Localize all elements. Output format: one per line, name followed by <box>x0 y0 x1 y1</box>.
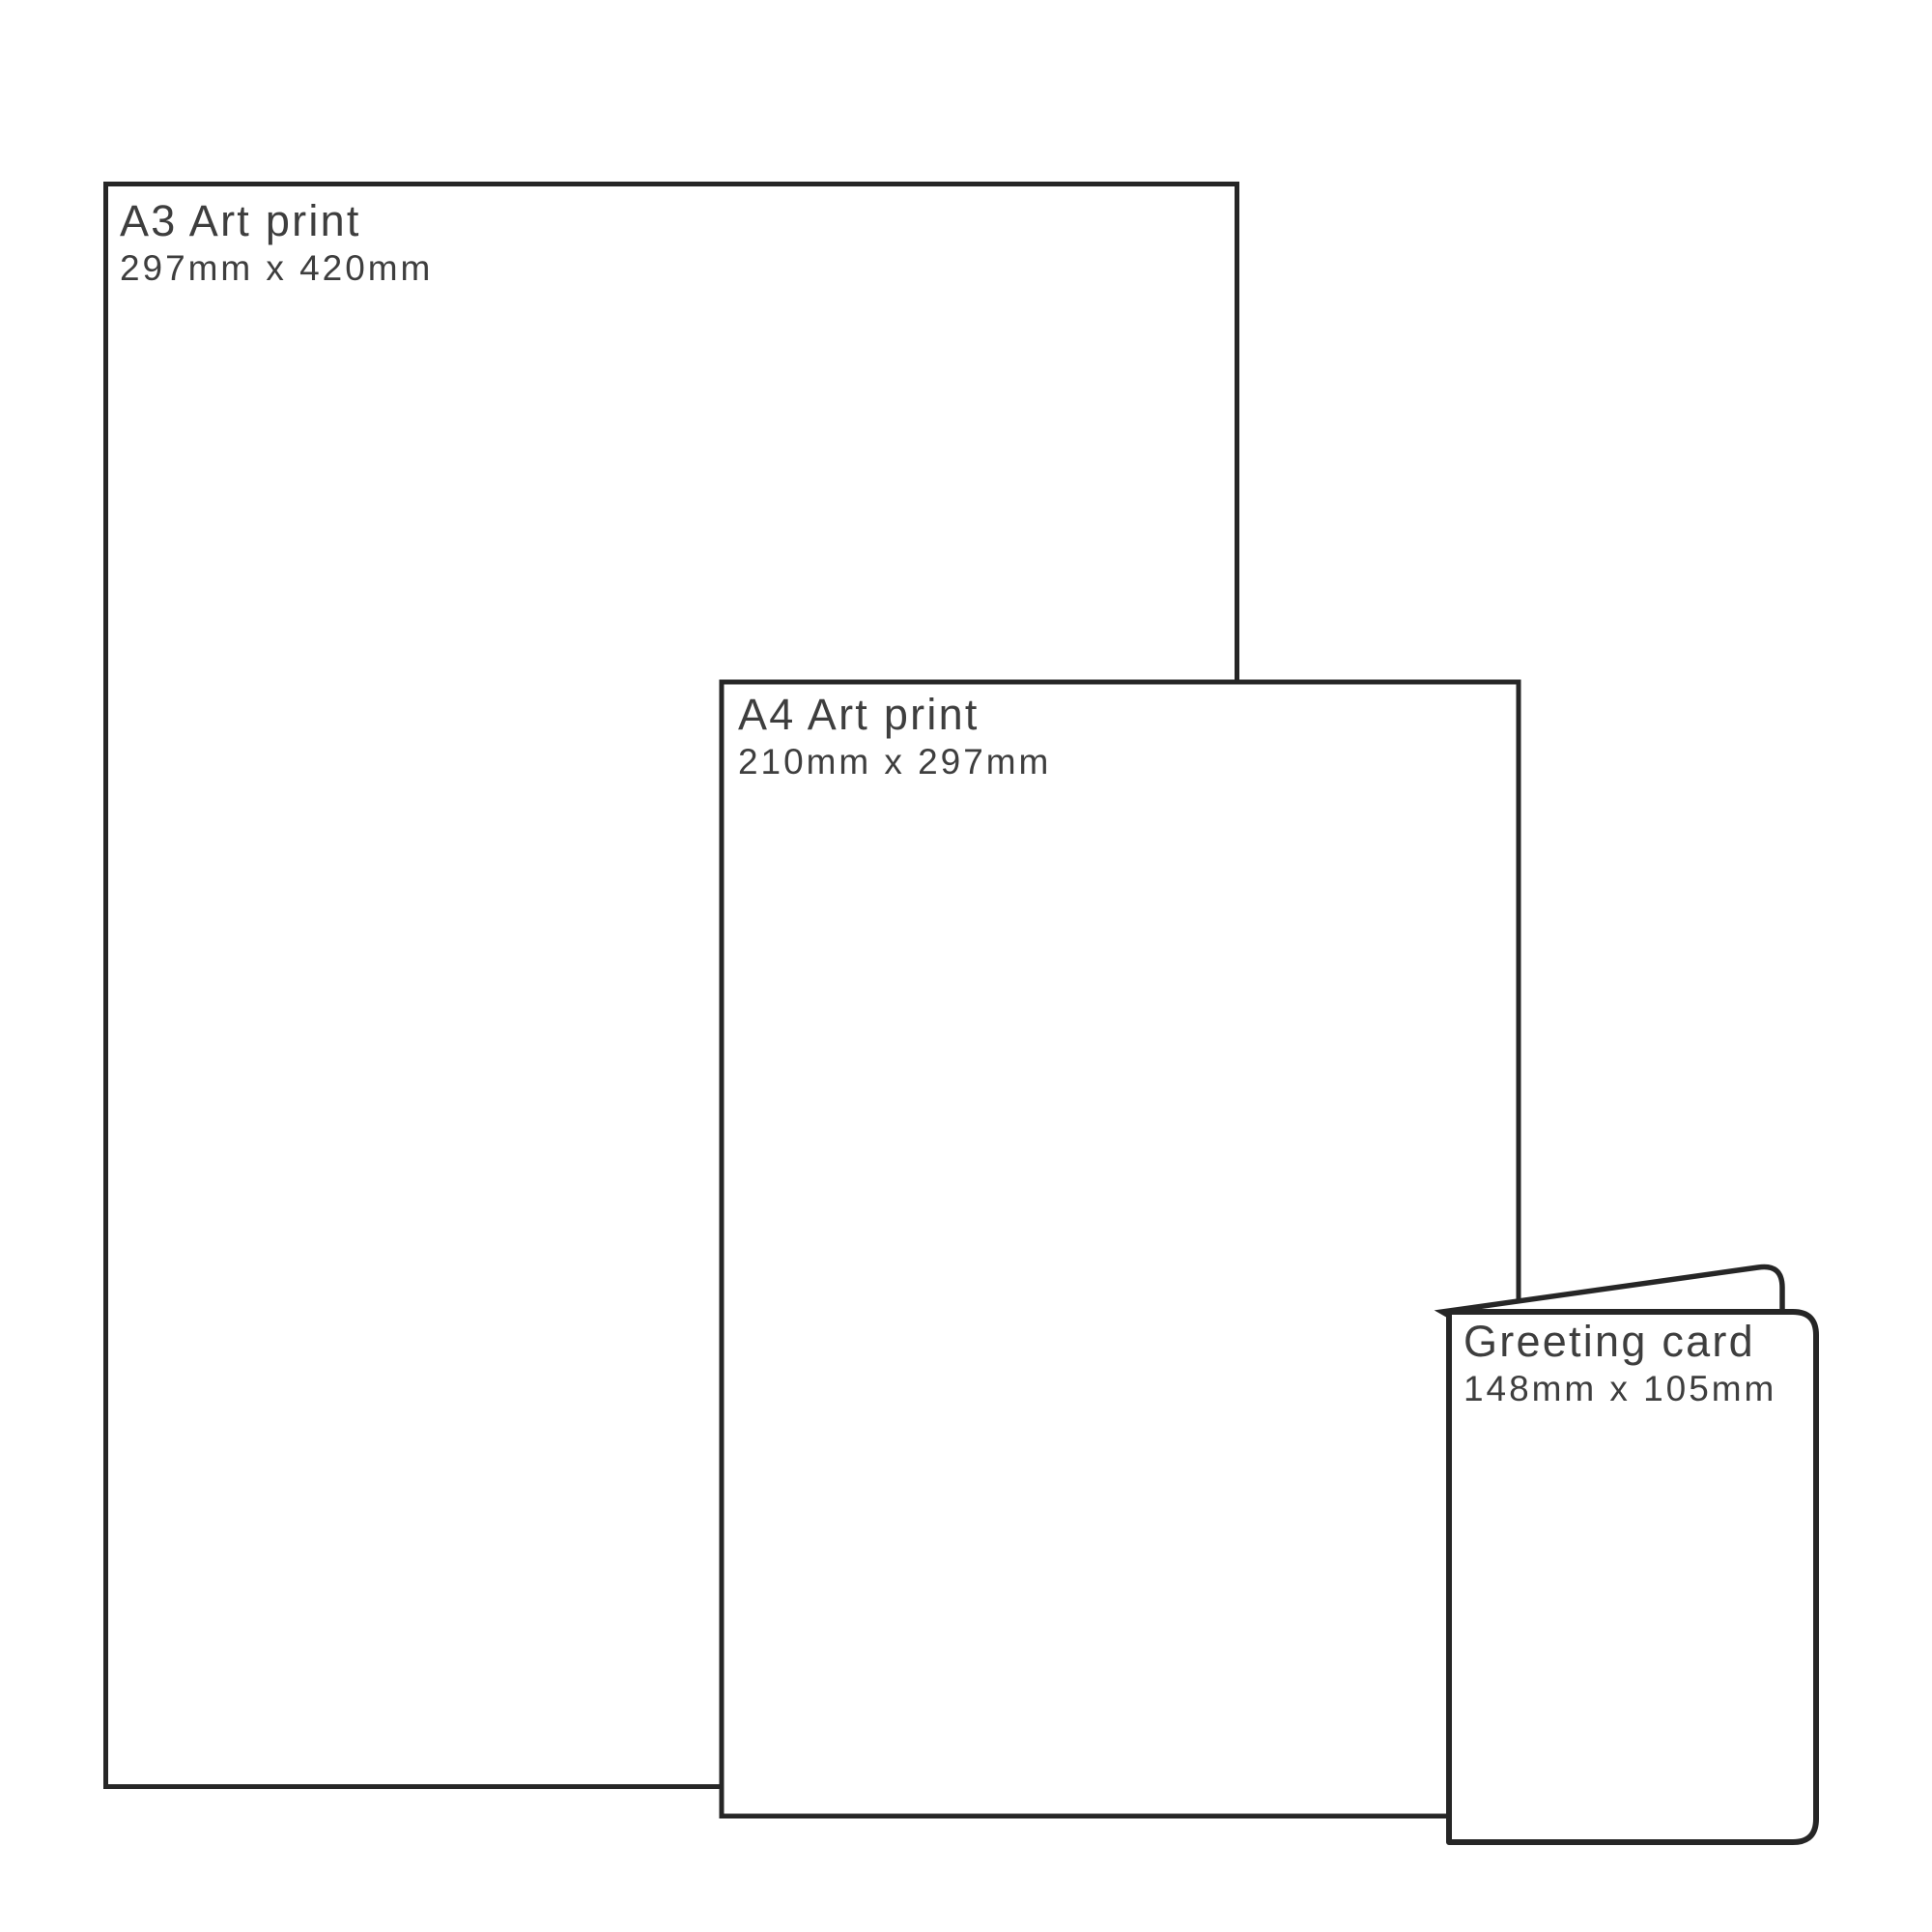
a3-title: A3 Art print <box>120 197 433 245</box>
greeting-card-title: Greeting card <box>1463 1318 1776 1366</box>
a4-label: A4 Art print 210mm x 297mm <box>738 691 1051 784</box>
a4-dimensions: 210mm x 297mm <box>738 739 1051 784</box>
a3-label: A3 Art print 297mm x 420mm <box>120 197 433 291</box>
a4-title: A4 Art print <box>738 691 1051 739</box>
greeting-card-label: Greeting card 148mm x 105mm <box>1463 1318 1776 1411</box>
a4-sheet-outline <box>722 682 1519 1816</box>
a3-dimensions: 297mm x 420mm <box>120 245 433 291</box>
greeting-card-dimensions: 148mm x 105mm <box>1463 1366 1776 1411</box>
size-comparison-canvas: A3 Art print 297mm x 420mm A4 Art print … <box>0 0 1932 1932</box>
